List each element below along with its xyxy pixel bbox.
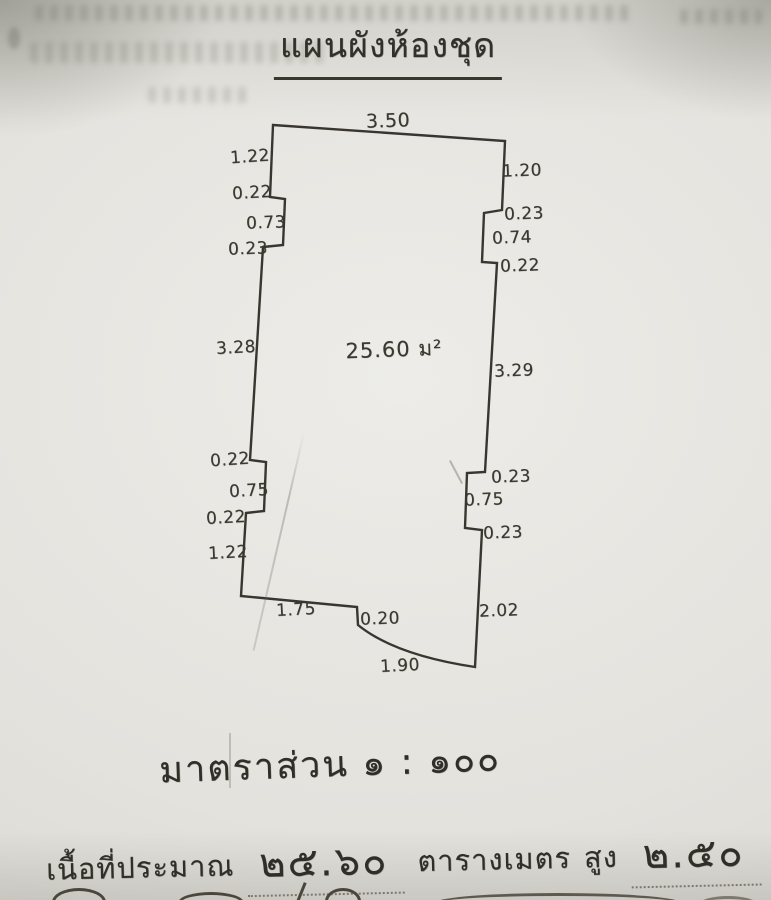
dim-bottom-curve: 1.90: [380, 655, 421, 677]
unit-area-label: 25.60 ม²: [345, 332, 443, 368]
dim-right-lower-4: 2.02: [479, 600, 520, 621]
paper-scratch: [229, 733, 231, 788]
dim-left-lower-2: 0.75: [229, 480, 270, 502]
dim-right-upper-4: 0.22: [500, 255, 541, 276]
scale-note: มาตราส่วน ๑ : ๑๐๐: [158, 730, 502, 799]
dim-bottom-step: 0.20: [360, 608, 401, 629]
dim-left-lower-1: 0.22: [209, 449, 250, 472]
dim-left-middle: 3.28: [216, 337, 257, 359]
dim-left-upper-3: 0.73: [246, 212, 287, 233]
dim-right-middle: 3.29: [494, 360, 535, 381]
area-unit-label: ตารางเมตร: [417, 835, 572, 884]
unit-boundary-path: [241, 125, 505, 667]
dim-right-lower-3: 0.23: [483, 522, 524, 543]
area-value-handwritten: ๒๕.๖๐: [246, 828, 405, 898]
dim-right-lower-2: 0.75: [464, 489, 505, 510]
dim-left-upper-2: 0.22: [232, 182, 273, 204]
scanned-floor-plan-page: แผนผังห้องชุด 3.50 1.22 0.22 0.73 0.23 3…: [0, 0, 771, 900]
dim-top-width: 3.50: [365, 109, 410, 133]
area-prefix-label: เนื้อที่ประมาณ: [46, 842, 235, 892]
dim-right-upper-2: 0.23: [504, 203, 545, 224]
height-value-handwritten: ๒.๕๐: [630, 820, 761, 889]
dim-left-lower-4: 1.22: [208, 542, 249, 564]
height-prefix-label: สูง: [583, 834, 618, 881]
dim-right-upper-3: 0.74: [492, 227, 533, 248]
dim-bottom-left: 1.75: [276, 599, 317, 621]
dim-right-lower-1: 0.23: [491, 466, 532, 487]
dim-left-upper-4: 0.23: [228, 238, 269, 259]
dim-left-lower-3: 0.22: [206, 507, 247, 529]
dim-right-upper-1: 1.20: [502, 160, 543, 181]
dim-left-upper-1: 1.22: [229, 146, 270, 169]
